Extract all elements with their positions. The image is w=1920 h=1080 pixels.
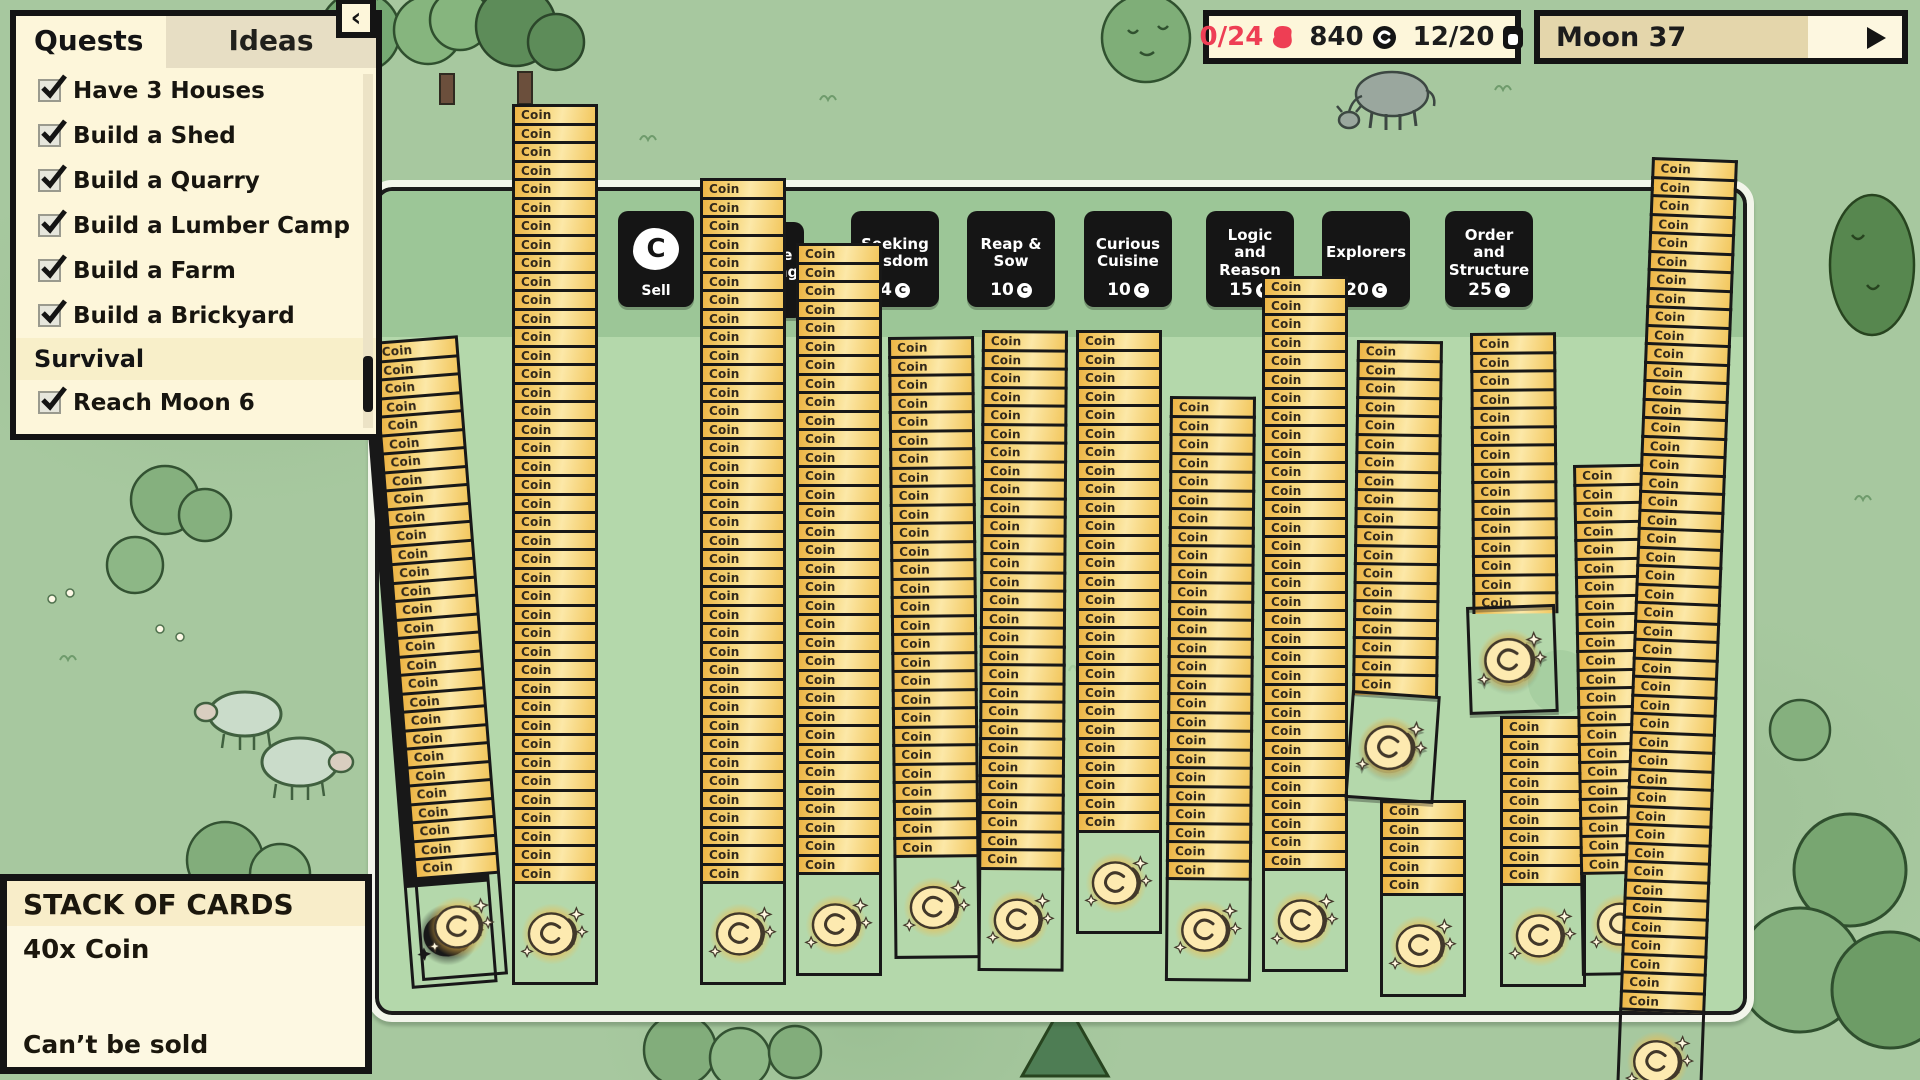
- coin-stack[interactable]: CoinCoinCoinCoinCoinCoinCoinCoinCoinCoin…: [372, 335, 508, 980]
- coin-card[interactable]: [893, 854, 980, 959]
- coin-stack[interactable]: CoinCoinCoinCoinCoin: [1380, 800, 1466, 997]
- coin-icon: [1372, 25, 1397, 50]
- coin-count: 840: [1309, 22, 1363, 52]
- coin-stack[interactable]: CoinCoinCoinCoinCoinCoinCoinCoinCoinCoin…: [796, 243, 882, 976]
- coin-card[interactable]: [796, 872, 882, 976]
- coin-card[interactable]: [1615, 1007, 1705, 1080]
- coin-card[interactable]: [1466, 604, 1559, 715]
- food-icon: [1271, 24, 1293, 50]
- quest-item: Build a Lumber Camp: [16, 203, 376, 248]
- quest-item: Build a Farm: [16, 248, 376, 293]
- coin-stack[interactable]: CoinCoinCoinCoinCoinCoinCoinCoinCoinCoin…: [1352, 340, 1443, 696]
- coin-stack[interactable]: CoinCoinCoinCoinCoinCoinCoinCoinCoinCoin…: [1615, 157, 1738, 1080]
- game-stage: C Sell Humble Beginnings Seeking Wisdom …: [0, 0, 1920, 1080]
- coin-stack[interactable]: CoinCoinCoinCoinCoinCoinCoinCoinCoinCoin…: [700, 178, 786, 985]
- coin-stack[interactable]: CoinCoinCoinCoinCoinCoinCoinCoinCoinCoin…: [1470, 332, 1558, 613]
- quest-item: Have 3 Houses: [16, 68, 376, 113]
- checkbox-checked-icon: [38, 169, 61, 192]
- coin-card[interactable]: [978, 866, 1065, 971]
- stats-panel: 0/24 840 12/20: [1203, 10, 1521, 64]
- checkbox-checked-icon: [38, 124, 61, 147]
- checkbox-checked-icon: [38, 259, 61, 282]
- coin-stack[interactable]: CoinCoinCoinCoinCoinCoinCoinCoinCoinCoin…: [978, 330, 1068, 971]
- quests-collapse-button[interactable]: ‹: [336, 0, 376, 38]
- moon-label: Moon 37: [1556, 22, 1686, 53]
- tab-quests[interactable]: Quests: [34, 24, 143, 57]
- stack-tooltip: STACK OF CARDS 40x Coin Can’t be sold: [0, 874, 372, 1074]
- quest-item: Build a Brickyard: [16, 293, 376, 338]
- coin-card-loose[interactable]: [1466, 604, 1556, 715]
- coin-card[interactable]: [1380, 893, 1466, 997]
- moon-panel: Moon 37: [1534, 10, 1908, 64]
- coin-card[interactable]: [1165, 877, 1252, 982]
- coin-stack[interactable]: CoinCoinCoinCoinCoinCoinCoinCoinCoinCoin…: [512, 104, 598, 985]
- play-icon[interactable]: [1867, 27, 1886, 49]
- coin-card[interactable]: [1076, 830, 1162, 934]
- tooltip-title: STACK OF CARDS: [7, 881, 365, 926]
- quests-scrollbar-thumb[interactable]: [363, 356, 373, 412]
- card-count: 12/20: [1413, 22, 1495, 52]
- coin-card[interactable]: [700, 881, 786, 985]
- coin-stack[interactable]: CoinCoinCoinCoinCoinCoinCoinCoinCoinCoin…: [1076, 330, 1162, 934]
- coin-stack[interactable]: CoinCoinCoinCoinCoinCoinCoinCoinCoin: [1500, 716, 1586, 987]
- coin-card[interactable]: [1344, 690, 1440, 804]
- quest-item: Build a Quarry: [16, 158, 376, 203]
- quest-item: Reach Moon 6: [16, 380, 376, 425]
- tooltip-contents: 40x Coin: [7, 926, 365, 965]
- coin-card[interactable]: [1262, 868, 1348, 972]
- checkbox-checked-icon: [38, 391, 61, 414]
- checkbox-checked-icon: [38, 214, 61, 237]
- coin-card[interactable]: [414, 870, 508, 980]
- checkbox-checked-icon: [38, 79, 61, 102]
- coin-stack[interactable]: CoinCoinCoinCoinCoinCoinCoinCoinCoinCoin…: [1165, 396, 1256, 982]
- coin-stack[interactable]: CoinCoinCoinCoinCoinCoinCoinCoinCoinCoin…: [1262, 276, 1348, 972]
- card-limit-icon: [1502, 25, 1524, 50]
- quests-panel: Quests Ideas Have 3 Houses Build a Shed …: [10, 10, 382, 440]
- coin-card[interactable]: [512, 881, 598, 985]
- checkbox-checked-icon: [38, 304, 61, 327]
- quest-section-survival: Survival: [16, 338, 376, 380]
- coin-card-loose[interactable]: [1344, 690, 1437, 804]
- quest-item: Build a Shed: [16, 113, 376, 158]
- quota-count: 0/24: [1200, 22, 1264, 52]
- tooltip-footer: Can’t be sold: [23, 1030, 208, 1059]
- coin-stack[interactable]: CoinCoinCoinCoinCoinCoinCoinCoinCoinCoin…: [888, 336, 981, 959]
- quests-header: Quests Ideas: [16, 16, 376, 68]
- coin-card[interactable]: [1500, 883, 1586, 987]
